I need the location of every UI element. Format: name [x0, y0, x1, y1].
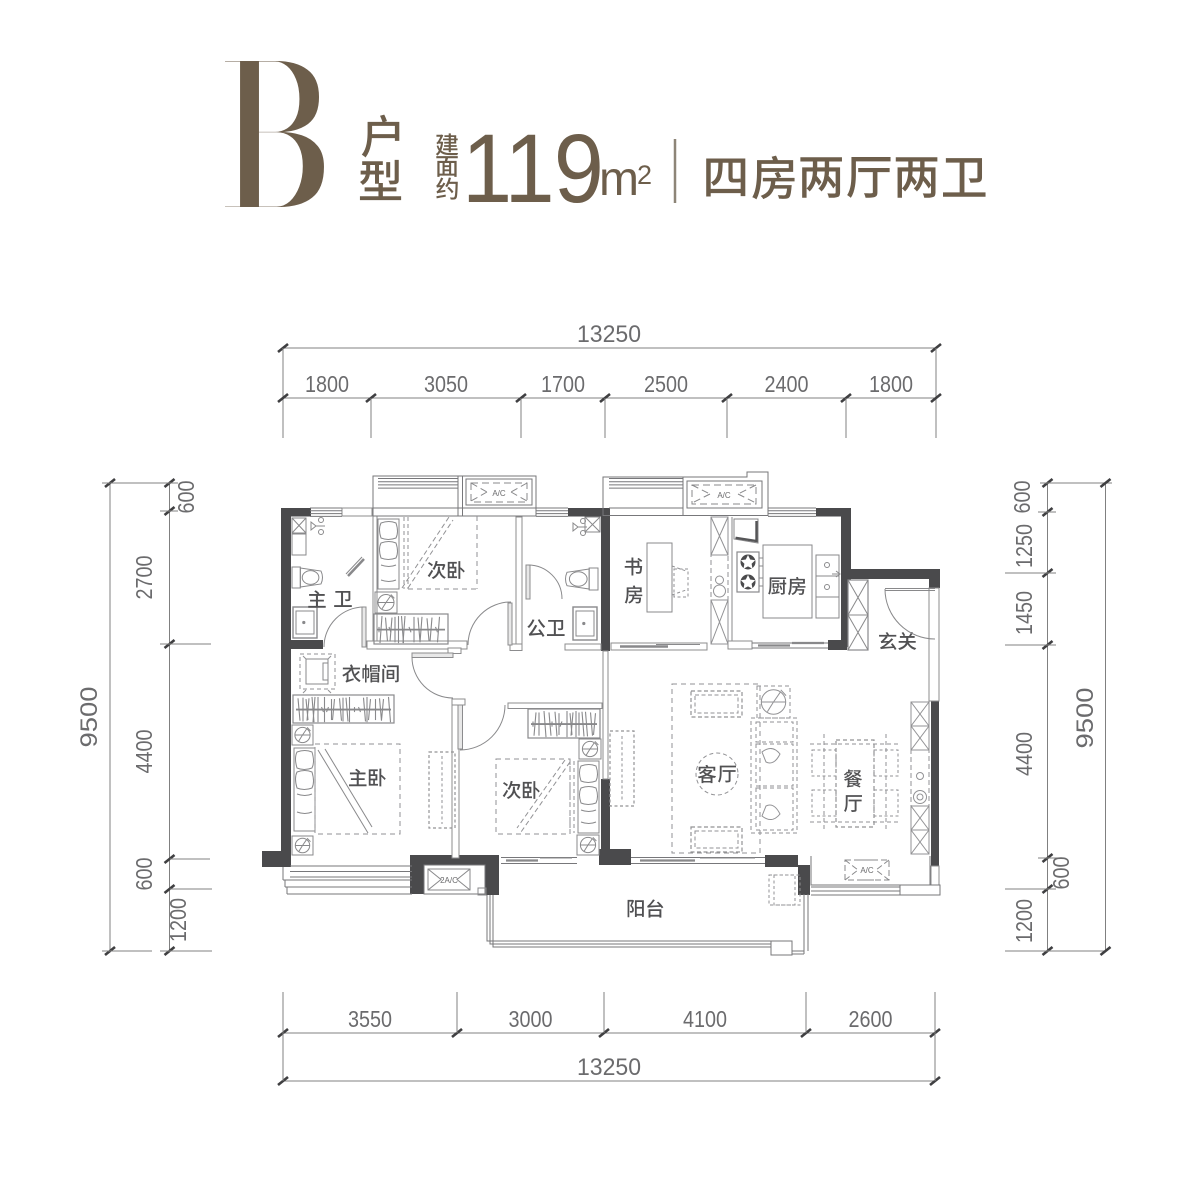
svg-text:4100: 4100 — [683, 1006, 727, 1032]
svg-text:1250: 1250 — [1011, 524, 1037, 568]
svg-text:600: 600 — [1048, 857, 1074, 890]
svg-text:4400: 4400 — [131, 730, 157, 774]
svg-text:1200: 1200 — [1011, 899, 1037, 943]
svg-text:A/C: A/C — [860, 866, 874, 875]
svg-text:3000: 3000 — [509, 1006, 553, 1032]
svg-text:2: 2 — [637, 160, 652, 190]
svg-text:2500: 2500 — [644, 371, 688, 397]
svg-text:9500: 9500 — [76, 687, 103, 748]
svg-text:600: 600 — [131, 858, 157, 891]
svg-text:4400: 4400 — [1011, 732, 1037, 776]
svg-text:13250: 13250 — [577, 321, 641, 348]
svg-text:1450: 1450 — [1011, 591, 1037, 635]
svg-text:2600: 2600 — [849, 1006, 893, 1032]
svg-text:2400: 2400 — [765, 371, 809, 397]
svg-text:1700: 1700 — [541, 371, 585, 397]
svg-text:3050: 3050 — [424, 371, 468, 397]
svg-text:13250: 13250 — [577, 1054, 641, 1081]
svg-text:2700: 2700 — [131, 556, 157, 600]
svg-text:m: m — [599, 153, 639, 206]
svg-text:2A/C: 2A/C — [440, 876, 458, 885]
svg-text:9500: 9500 — [1072, 688, 1099, 749]
svg-text:600: 600 — [1009, 481, 1035, 514]
svg-text:A/C: A/C — [492, 489, 506, 498]
svg-text:A/C: A/C — [717, 491, 731, 500]
svg-text:1800: 1800 — [869, 371, 913, 397]
svg-text:119: 119 — [462, 114, 603, 223]
svg-text:3550: 3550 — [348, 1006, 392, 1032]
svg-text:1200: 1200 — [165, 898, 191, 942]
svg-text:1800: 1800 — [305, 371, 349, 397]
svg-text:600: 600 — [173, 481, 199, 514]
